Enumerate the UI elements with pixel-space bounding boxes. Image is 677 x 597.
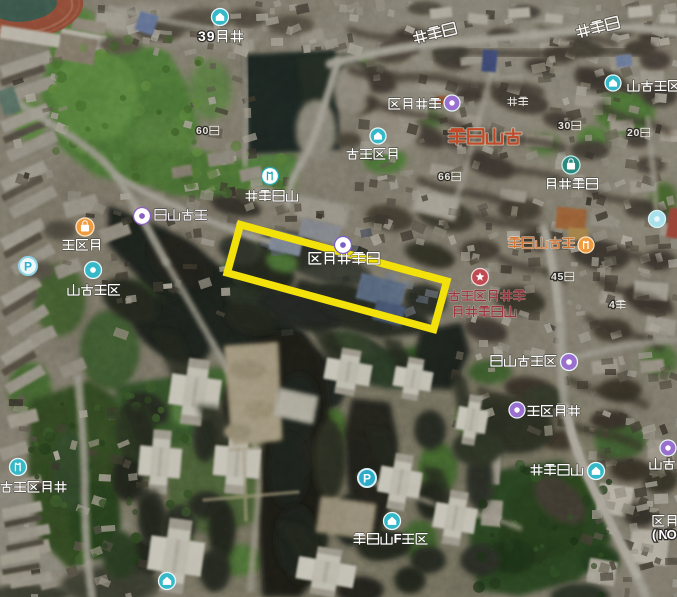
svg-text:F: F: [394, 531, 402, 546]
svg-text:2: 2: [627, 127, 633, 139]
svg-text:4: 4: [551, 271, 557, 283]
svg-text:6: 6: [438, 171, 444, 183]
svg-text:P: P: [363, 472, 371, 486]
svg-text:6: 6: [445, 171, 451, 183]
svg-text:3: 3: [198, 28, 206, 44]
svg-text:3: 3: [558, 120, 564, 132]
svg-text:O: O: [667, 527, 677, 542]
svg-text:9: 9: [207, 28, 215, 44]
svg-text:(: (: [652, 527, 657, 542]
svg-text:6: 6: [196, 125, 202, 137]
svg-text:0: 0: [565, 120, 571, 132]
svg-text:5: 5: [558, 271, 564, 283]
svg-text:P: P: [24, 260, 32, 274]
svg-text:0: 0: [203, 125, 209, 137]
svg-text:0: 0: [634, 127, 640, 139]
svg-text:4: 4: [609, 299, 615, 311]
